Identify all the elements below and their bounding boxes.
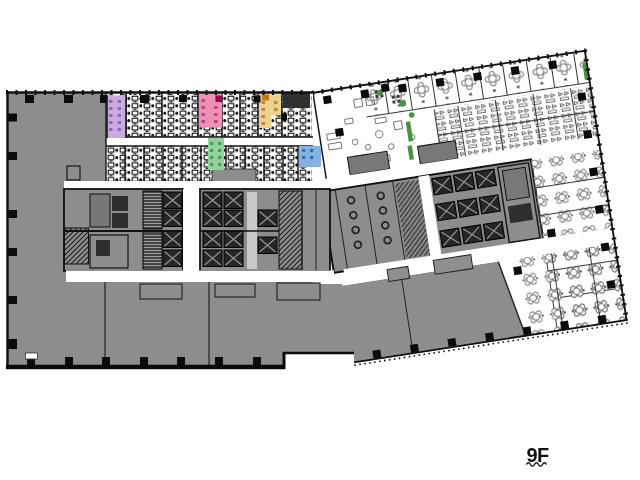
svg-text:9F: 9F [527,444,550,466]
